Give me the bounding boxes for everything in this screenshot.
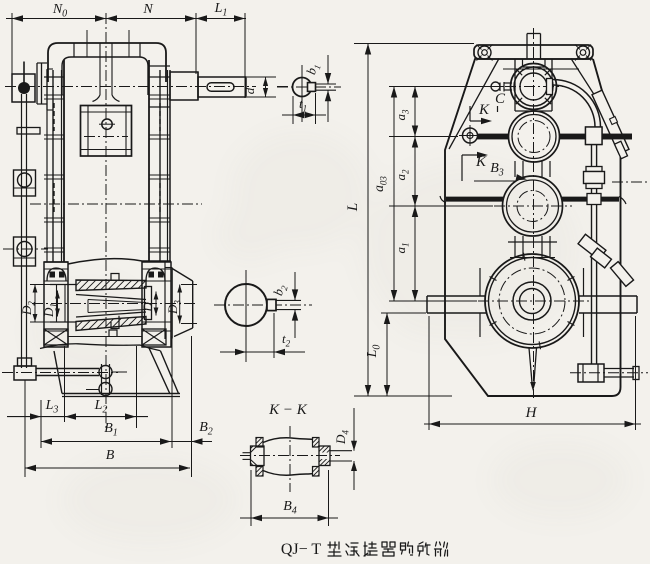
svg-text:D4: D4 <box>333 430 351 445</box>
svg-text:K: K <box>478 102 490 118</box>
svg-text:K − K: K − K <box>268 402 308 418</box>
svg-text:a3: a3 <box>393 109 411 121</box>
svg-text:B3: B3 <box>490 161 504 179</box>
svg-text:a2: a2 <box>393 169 411 181</box>
svg-text:N0: N0 <box>52 2 67 20</box>
svg-text:L1: L1 <box>214 1 228 19</box>
svg-text:C: C <box>495 91 506 107</box>
svg-text:a03: a03 <box>371 176 389 192</box>
svg-text:N: N <box>142 2 153 17</box>
svg-text:t1: t1 <box>299 96 307 114</box>
svg-text:D: D <box>140 302 155 313</box>
svg-text:L3: L3 <box>45 398 59 416</box>
svg-text:B1: B1 <box>104 421 118 439</box>
svg-text:L: L <box>345 203 361 212</box>
svg-text:QJ− T: QJ− T <box>281 541 322 558</box>
svg-text:t2: t2 <box>282 331 291 349</box>
svg-text:L2: L2 <box>94 398 108 416</box>
svg-text:b2: b2 <box>270 282 290 298</box>
svg-text:H: H <box>525 405 538 421</box>
svg-text:D3: D3 <box>165 300 183 315</box>
svg-text:K: K <box>475 154 487 170</box>
svg-text:b1: b1 <box>303 62 323 77</box>
svg-text:B2: B2 <box>199 420 213 438</box>
svg-text:B: B <box>106 448 115 463</box>
svg-text:B4: B4 <box>283 499 297 517</box>
svg-text:d: d <box>242 87 257 94</box>
